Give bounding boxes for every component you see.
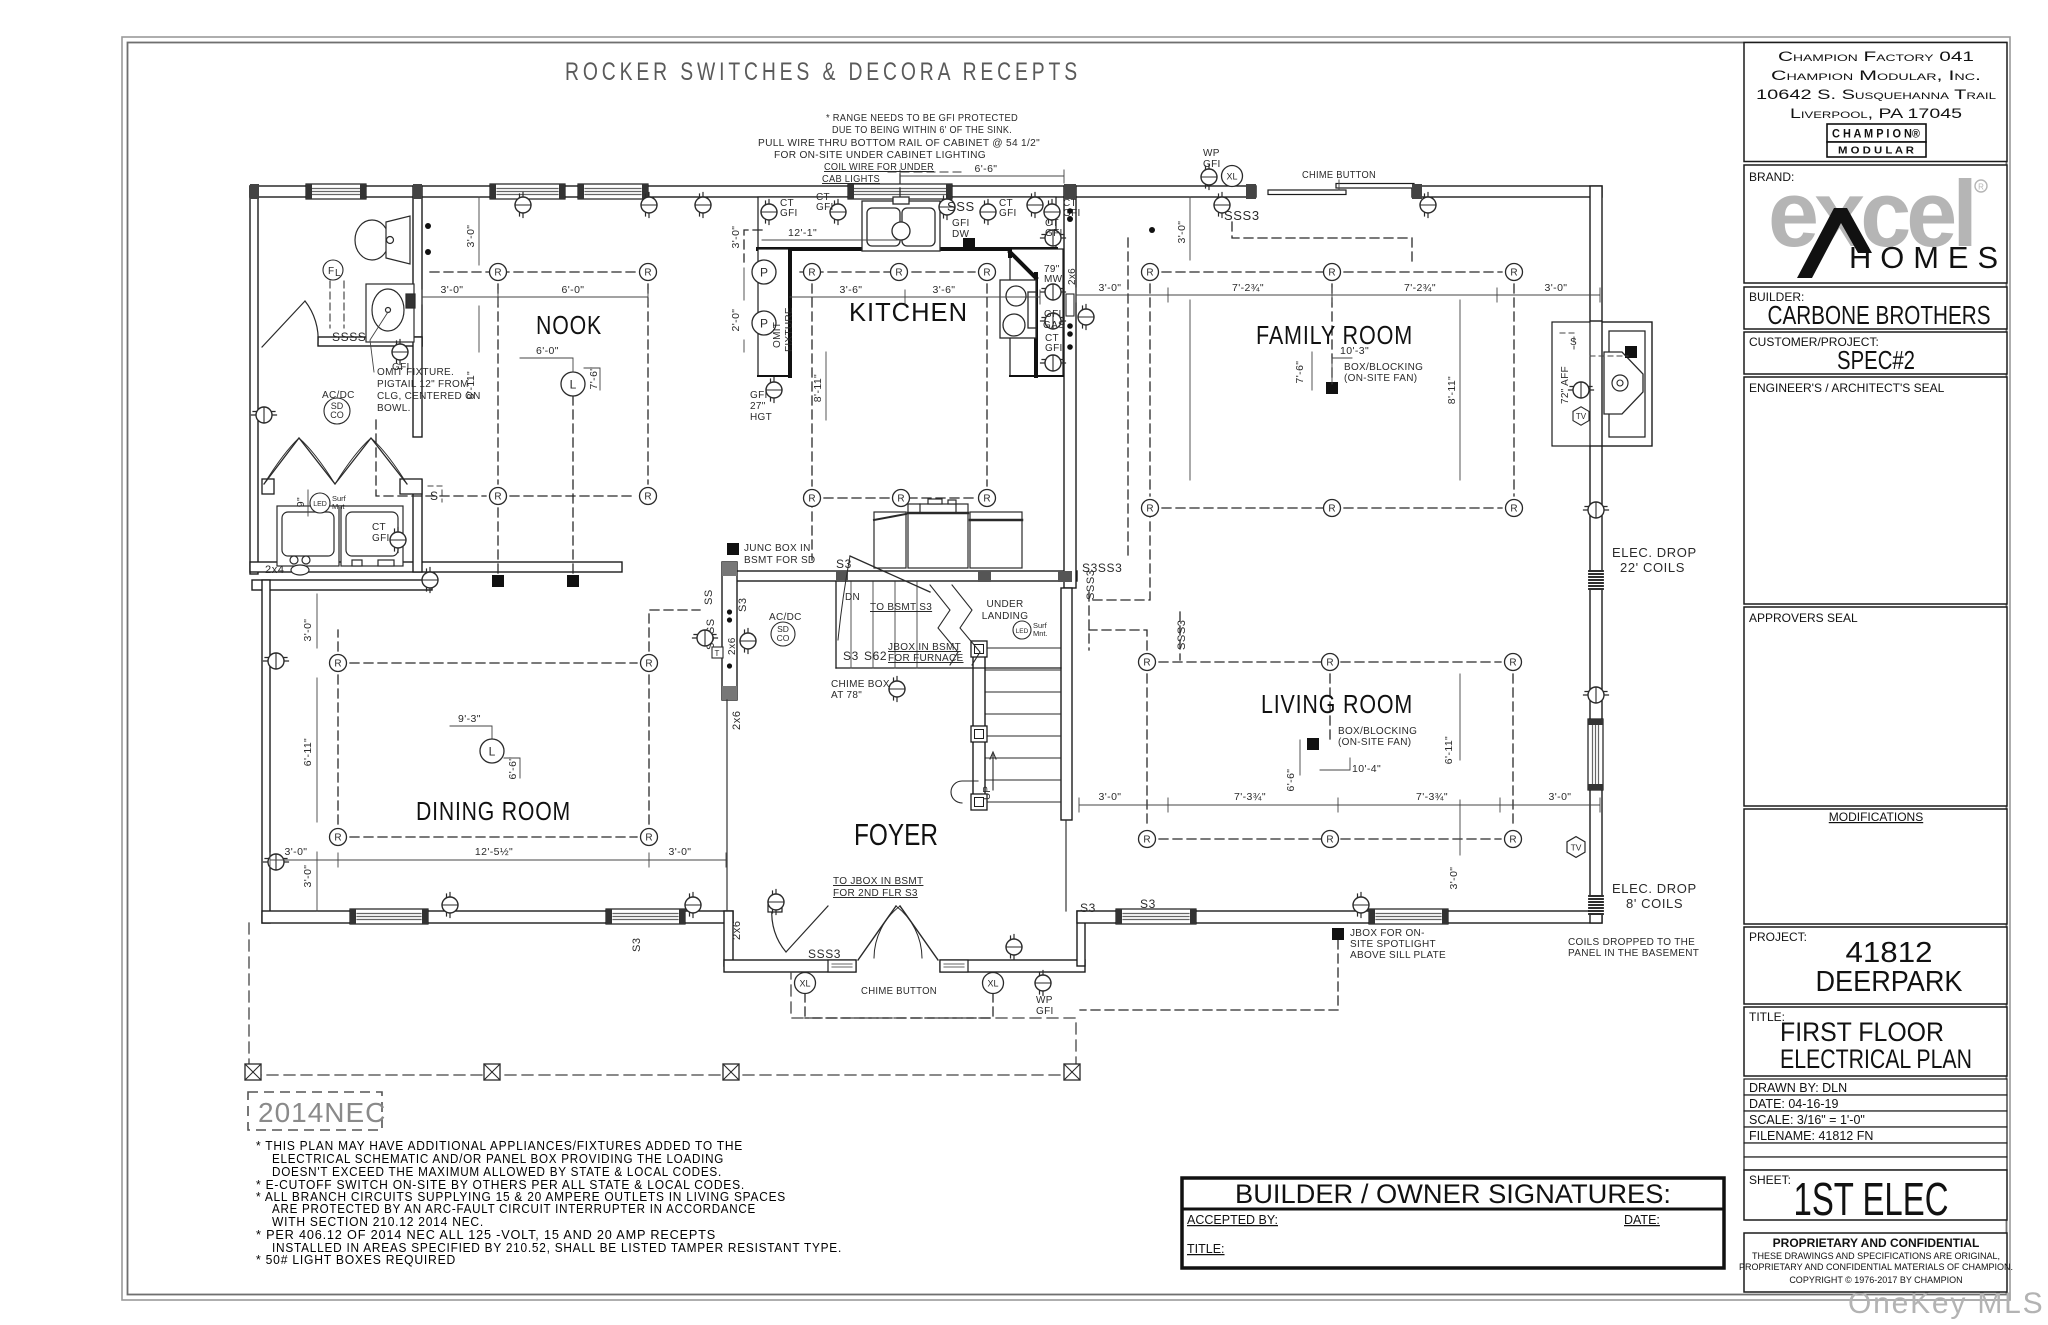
svg-text:DUE TO BEING WITHIN 6' OF THE: DUE TO BEING WITHIN 6' OF THE SINK. (832, 125, 1012, 136)
svg-text:6'-6": 6'-6" (1285, 769, 1297, 792)
svg-text:FIXTURE: FIXTURE (784, 307, 795, 352)
svg-text:S: S (430, 489, 439, 503)
svg-text:3'-0": 3'-0" (302, 619, 314, 642)
svg-text:SSS3: SSS3 (1176, 619, 1188, 650)
svg-text:HOMES: HOMES (1849, 240, 2007, 275)
svg-text:BSMT FOR SD: BSMT FOR SD (744, 555, 815, 566)
svg-text:DOESN'T EXCEED THE MAXIMUM ALL: DOESN'T EXCEED THE MAXIMUM ALLOWED BY ST… (272, 1165, 722, 1179)
svg-text:6'-6": 6'-6" (975, 163, 998, 175)
svg-text:22' COILS: 22' COILS (1620, 560, 1685, 575)
svg-text:L: L (335, 268, 341, 279)
svg-text:GFI: GFI (1045, 228, 1063, 239)
svg-text:3'-0": 3'-0" (441, 284, 464, 296)
svg-text:3'-0": 3'-0" (669, 846, 692, 858)
svg-text:7'-3¾": 7'-3¾" (1234, 791, 1266, 803)
svg-text:GFI: GFI (1036, 1006, 1054, 1017)
svg-text:ARE PROTECTED BY AN ARC-FAULT: ARE PROTECTED BY AN ARC-FAULT CIRCUIT IN… (272, 1202, 756, 1216)
svg-text:JUNC BOX IN: JUNC BOX IN (744, 543, 811, 554)
svg-text:41812: 41812 (1846, 937, 1933, 969)
svg-text:ROCKER SWITCHES & DECORA RECEP: ROCKER SWITCHES & DECORA RECEPTS (565, 58, 1081, 86)
svg-text:1ST ELEC: 1ST ELEC (1794, 1173, 1949, 1225)
svg-text:DATE: 04-16-19: DATE: 04-16-19 (1749, 1097, 1838, 1111)
svg-text:SSS3: SSS3 (1224, 208, 1260, 223)
svg-text:TITLE:: TITLE: (1187, 1242, 1225, 1256)
svg-text:6'-0": 6'-0" (562, 284, 585, 296)
svg-text:PROPRIETARY AND CONFIDENTIAL M: PROPRIETARY AND CONFIDENTIAL MATERIALS O… (1739, 1262, 2013, 1272)
svg-text:2x4: 2x4 (265, 564, 285, 576)
svg-text:OMIT: OMIT (772, 322, 783, 348)
svg-text:FIRST FLOOR: FIRST FLOOR (1780, 1017, 1944, 1047)
svg-text:Mnt.: Mnt. (1033, 629, 1048, 638)
svg-text:* PER 406.12 OF 2014 NEC ALL 1: * PER 406.12 OF 2014 NEC ALL 125 -VOLT, … (256, 1228, 716, 1242)
svg-text:S3: S3 (631, 937, 643, 952)
svg-text:10'-4": 10'-4" (1352, 763, 1381, 775)
svg-text:ELECTRICAL PLAN: ELECTRICAL PLAN (1780, 1044, 1972, 1074)
svg-text:72" AFF: 72" AFF (1560, 366, 1571, 404)
svg-text:KITCHEN: KITCHEN (849, 297, 968, 327)
svg-text:BOX/BLOCKING: BOX/BLOCKING (1344, 362, 1423, 373)
svg-text:9": 9" (295, 497, 307, 507)
svg-text:FOYER: FOYER (854, 817, 938, 852)
svg-text:ELECTRICAL SCHEMATIC AND/OR PA: ELECTRICAL SCHEMATIC AND/OR PANEL BOX PR… (272, 1152, 724, 1166)
svg-text:12'-1": 12'-1" (788, 227, 817, 239)
svg-text:PROJECT:: PROJECT: (1749, 930, 1807, 944)
svg-text:* THIS PLAN MAY HAVE ADDITIONA: * THIS PLAN MAY HAVE ADDITIONAL APPLIANC… (256, 1139, 743, 1153)
svg-text:12'-5½": 12'-5½" (475, 846, 513, 858)
svg-text:TV: TV (1571, 843, 1582, 853)
svg-text:UP: UP (982, 786, 993, 800)
svg-text:S3: S3 (1140, 897, 1156, 911)
svg-text:SSSS: SSSS (332, 330, 366, 344)
svg-text:WITH SECTION 210.12 2014 NEC.: WITH SECTION 210.12 2014 NEC. (272, 1215, 484, 1229)
svg-text:27": 27" (750, 401, 766, 412)
svg-text:7'-6": 7'-6" (1294, 361, 1306, 384)
svg-text:NOOK: NOOK (536, 310, 602, 340)
svg-text:DRAWN BY: DLN: DRAWN BY: DLN (1749, 1081, 1847, 1095)
svg-text:CARBONE BROTHERS: CARBONE BROTHERS (1768, 300, 1991, 330)
svg-text:* 50# LIGHT BOXES REQUIRED: * 50# LIGHT BOXES REQUIRED (256, 1253, 456, 1267)
svg-text:2x6: 2x6 (1067, 268, 1078, 285)
svg-text:3'-0": 3'-0" (302, 865, 314, 888)
svg-text:L: L (570, 378, 577, 392)
svg-text:SITE SPOTLIGHT: SITE SPOTLIGHT (1350, 939, 1436, 950)
svg-text:CLG, CENTERED ON: CLG, CENTERED ON (377, 391, 481, 402)
svg-text:DATE:: DATE: (1624, 1213, 1660, 1227)
svg-text:CAB LIGHTS: CAB LIGHTS (822, 174, 880, 185)
svg-text:3'-6": 3'-6" (933, 284, 956, 296)
svg-text:APPROVERS SEAL: APPROVERS SEAL (1749, 611, 1858, 625)
svg-text:Liverpool, PA 17045: Liverpool, PA 17045 (1790, 106, 1962, 121)
svg-text:ABOVE SILL PLATE: ABOVE SILL PLATE (1350, 950, 1446, 961)
svg-text:Mnt: Mnt (332, 502, 345, 511)
svg-text:GFI: GFI (816, 202, 834, 213)
svg-text:PIGTAIL 12" FROM: PIGTAIL 12" FROM (377, 379, 469, 390)
svg-text:3'-6": 3'-6" (840, 284, 863, 296)
svg-text:CHIME BOX: CHIME BOX (831, 679, 890, 690)
svg-text:3'-0": 3'-0" (1099, 282, 1122, 294)
svg-text:TO JBOX IN BSMT: TO JBOX IN BSMT (833, 876, 923, 887)
svg-text:7'-3¾": 7'-3¾" (1416, 791, 1448, 803)
svg-text:(ON-SITE FAN): (ON-SITE FAN) (1338, 737, 1411, 748)
svg-text:JBOX IN BSMT: JBOX IN BSMT (888, 642, 961, 653)
svg-text:3'-0": 3'-0" (1448, 867, 1460, 890)
svg-text:2'-0": 2'-0" (730, 309, 742, 332)
svg-text:GFI: GFI (1044, 309, 1062, 320)
svg-text:WP: WP (1036, 995, 1053, 1006)
svg-text:C H A M P I O N®: C H A M P I O N® (1832, 127, 1920, 141)
svg-text:(ON-SITE FAN): (ON-SITE FAN) (1344, 373, 1417, 384)
svg-text:3'-0": 3'-0" (730, 226, 742, 249)
svg-text:MODIFICATIONS: MODIFICATIONS (1829, 810, 1923, 824)
svg-text:GFI: GFI (372, 533, 390, 544)
svg-text:L: L (489, 745, 496, 759)
svg-text:CT: CT (372, 522, 386, 533)
svg-text:ELEC. DROP: ELEC. DROP (1612, 545, 1697, 560)
svg-text:COILS DROPPED TO THE: COILS DROPPED TO THE (1568, 937, 1695, 948)
svg-text:BOWL.: BOWL. (377, 403, 411, 414)
svg-text:SSS3: SSS3 (808, 947, 841, 961)
svg-text:P: P (760, 266, 768, 280)
svg-text:TV: TV (1576, 412, 1587, 421)
svg-text:GFI: GFI (999, 208, 1017, 219)
svg-text:SSS: SSS (947, 199, 975, 214)
svg-text:SPEC#2: SPEC#2 (1837, 345, 1915, 375)
svg-text:7'-6": 7'-6" (588, 367, 600, 390)
svg-text:CHIME BUTTON: CHIME BUTTON (1302, 170, 1376, 181)
svg-text:8'-11": 8'-11" (1446, 376, 1458, 404)
svg-text:GFI: GFI (1203, 159, 1221, 170)
svg-text:Champion Factory 041: Champion Factory 041 (1778, 49, 1974, 64)
svg-text:6'-6": 6'-6" (507, 757, 519, 780)
svg-text:FOR ON-SITE UNDER CABINET LIGH: FOR ON-SITE UNDER CABINET LIGHTING (774, 150, 986, 161)
svg-text:S3: S3 (737, 597, 749, 612)
svg-text:S62: S62 (864, 649, 887, 663)
svg-text:LIVING ROOM: LIVING ROOM (1261, 689, 1413, 719)
svg-text:GFI: GFI (1045, 343, 1063, 354)
svg-text:S3: S3 (1080, 901, 1096, 915)
svg-text:3'-0": 3'-0" (285, 846, 308, 858)
svg-text:2x6: 2x6 (731, 710, 743, 730)
svg-text:8'-11": 8'-11" (812, 374, 824, 402)
svg-text:3'-0": 3'-0" (1549, 791, 1572, 803)
svg-text:DINING ROOM: DINING ROOM (416, 796, 571, 826)
svg-text:2x6: 2x6 (731, 920, 743, 940)
svg-text:AC/DC: AC/DC (769, 612, 802, 623)
svg-text:FOR FURNACE: FOR FURNACE (888, 653, 964, 664)
svg-text:THESE DRAWINGS AND SPECIFICATI: THESE DRAWINGS AND SPECIFICATIONS ARE OR… (1752, 1251, 2000, 1261)
svg-text:* RANGE NEEDS TO BE GFI PROTEC: * RANGE NEEDS TO BE GFI PROTECTED (826, 113, 1018, 124)
svg-text:10'-3": 10'-3" (1340, 345, 1369, 357)
svg-text:FILENAME: 41812 FN: FILENAME: 41812 FN (1749, 1129, 1873, 1143)
svg-text:M O D U L A R: M O D U L A R (1838, 146, 1915, 157)
svg-text:DEERPARK: DEERPARK (1816, 966, 1964, 998)
svg-text:CO: CO (330, 410, 344, 420)
svg-text:6'-11": 6'-11" (1443, 736, 1455, 764)
svg-text:T: T (715, 649, 720, 658)
svg-text:8' COILS: 8' COILS (1626, 896, 1683, 911)
svg-text:2x6: 2x6 (727, 637, 738, 655)
svg-text:LED: LED (313, 501, 327, 508)
svg-text:GFI: GFI (750, 390, 768, 401)
svg-text:SCALE: 3/16" = 1'-0": SCALE: 3/16" = 1'-0" (1749, 1113, 1865, 1127)
svg-text:TO BSMT S3: TO BSMT S3 (870, 602, 932, 613)
svg-text:7'-2¾": 7'-2¾" (1232, 282, 1264, 294)
svg-text:WP: WP (1203, 148, 1220, 159)
svg-text:SS: SS (703, 589, 715, 605)
svg-text:3'-0": 3'-0" (1176, 221, 1188, 244)
svg-text:FOR 2ND FLR S3: FOR 2ND FLR S3 (833, 888, 918, 899)
svg-text:3'-0": 3'-0" (1099, 791, 1122, 803)
svg-text:AT 78": AT 78" (831, 690, 862, 701)
svg-text:FAMILY ROOM: FAMILY ROOM (1256, 320, 1413, 350)
svg-text:9'-3": 9'-3" (458, 713, 481, 725)
svg-text:ELEC. DROP: ELEC. DROP (1612, 881, 1697, 896)
svg-text:6'-0": 6'-0" (536, 345, 559, 357)
svg-text:COPYRIGHT © 1976-2017 BY CHAMP: COPYRIGHT © 1976-2017 BY CHAMPION (1789, 1275, 1962, 1285)
svg-text:CHIME BUTTON: CHIME BUTTON (861, 986, 937, 997)
svg-text:Champion Modular, Inc.: Champion Modular, Inc. (1771, 68, 1981, 83)
svg-text:2014NEC: 2014NEC (258, 1097, 386, 1128)
svg-text:7'-2¾": 7'-2¾" (1404, 282, 1436, 294)
svg-text:ENGINEER'S / ARCHITECT'S SEAL: ENGINEER'S / ARCHITECT'S SEAL (1749, 381, 1945, 395)
svg-text:LANDING: LANDING (982, 611, 1029, 622)
svg-text:COIL WIRE FOR UNDER: COIL WIRE FOR UNDER (824, 162, 934, 173)
svg-text:CO: CO (777, 633, 790, 643)
svg-text:P: P (760, 317, 768, 331)
svg-text:S3: S3 (843, 649, 859, 663)
svg-text:HGT: HGT (750, 412, 772, 423)
svg-text:6'-11": 6'-11" (302, 738, 314, 766)
svg-text:R: R (1978, 183, 1984, 192)
svg-text:SHEET:: SHEET: (1749, 1173, 1791, 1187)
svg-text:10642 S. Susquehanna Trail: 10642 S. Susquehanna Trail (1756, 87, 1996, 102)
svg-text:GFI: GFI (952, 218, 970, 229)
svg-text:OMIT FIXTURE.: OMIT FIXTURE. (377, 367, 454, 378)
svg-text:3'-0": 3'-0" (1545, 282, 1568, 294)
svg-text:MW: MW (1044, 274, 1063, 285)
svg-text:BOX/BLOCKING: BOX/BLOCKING (1338, 726, 1417, 737)
svg-text:UNDER: UNDER (986, 599, 1023, 610)
svg-text:GAS: GAS (1043, 320, 1065, 331)
svg-text:LED: LED (1016, 628, 1029, 635)
svg-text:JBOX FOR ON-: JBOX FOR ON- (1350, 928, 1425, 939)
svg-text:ACCEPTED BY:: ACCEPTED BY: (1187, 1213, 1278, 1227)
svg-text:SSS3: SSS3 (1085, 569, 1097, 600)
svg-text:F: F (328, 266, 334, 277)
svg-text:BUILDER / OWNER SIGNATURES:: BUILDER / OWNER SIGNATURES: (1235, 1179, 1671, 1209)
svg-text:PANEL IN THE BASEMENT: PANEL IN THE BASEMENT (1568, 948, 1699, 959)
svg-text:GFI: GFI (780, 208, 798, 219)
svg-text:DN: DN (845, 592, 860, 603)
svg-text:PROPRIETARY AND CONFIDENTIAL: PROPRIETARY AND CONFIDENTIAL (1773, 1236, 1980, 1250)
svg-text:PULL WIRE THRU BOTTOM RAIL OF: PULL WIRE THRU BOTTOM RAIL OF CABINET @ … (758, 138, 1040, 149)
svg-text:3'-0": 3'-0" (465, 225, 477, 248)
